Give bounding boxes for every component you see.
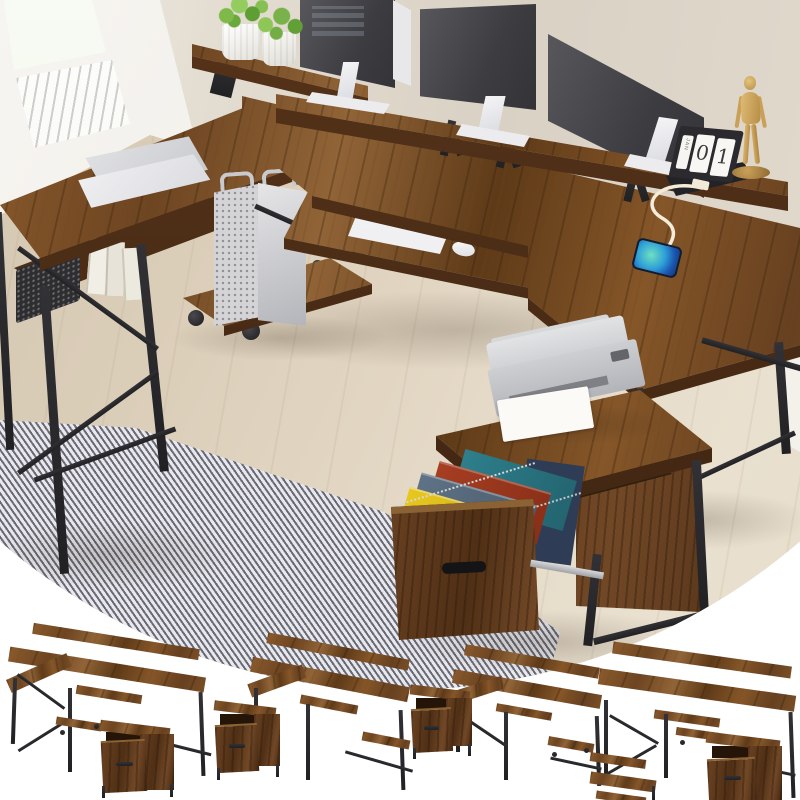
thumb-cart-wheel <box>584 748 589 753</box>
thumb-leg <box>199 692 206 776</box>
thumb-cabinet-leg <box>276 764 279 777</box>
laptop <box>77 134 211 211</box>
mannequin-leg <box>743 124 751 164</box>
mannequin-base <box>732 166 770 179</box>
cpu-front-lattice <box>214 184 258 326</box>
file-drawer <box>386 462 586 652</box>
drawer-handle <box>442 561 487 574</box>
thumb-partial-desk-shelf <box>596 791 647 800</box>
cart-wheel <box>188 310 204 326</box>
monitor-center-screen <box>420 4 536 110</box>
thumb-drawer-handle <box>116 762 133 766</box>
thumb-cart-wheel <box>552 752 557 757</box>
thumb-cabinet-drawer <box>101 739 148 793</box>
left-wing-shadow <box>0 520 240 590</box>
monitor-left-back <box>393 0 411 86</box>
wood-mannequin <box>726 76 778 184</box>
thumb-keyboard-tray <box>76 685 143 704</box>
thumb-leg <box>604 700 608 778</box>
thumb-drawer-handle <box>229 744 245 748</box>
cpu-side <box>258 180 306 326</box>
thumb-cabinet-drawer <box>411 707 453 753</box>
mannequin-torso <box>740 92 761 125</box>
thumb-partial-desk-top <box>589 771 656 792</box>
thumb-cart-wheel <box>680 740 685 745</box>
thumb-leg <box>789 712 796 798</box>
thumb-brace <box>609 714 659 745</box>
thumb-leg <box>68 688 72 772</box>
thumb-cabinet-leg <box>217 768 220 780</box>
thumb-drawer-handle <box>424 726 439 730</box>
thumb-leg <box>664 714 668 778</box>
thumbnail-variant-2[interactable] <box>214 640 406 798</box>
thumbnail-variant-1[interactable] <box>2 626 210 798</box>
thumb-leg <box>11 678 17 744</box>
mannequin-head <box>744 76 756 90</box>
thumb-leg <box>306 704 310 780</box>
thumb-cart-wheel <box>94 724 99 729</box>
product-image: JAN 0 1 <box>0 0 800 800</box>
thumb-cabinet-leg <box>170 784 173 797</box>
thumb-cabinet-leg <box>102 786 105 798</box>
thumb-drawer-handle <box>724 776 741 780</box>
calendar-month-label: JAN <box>682 138 691 151</box>
mannequin-leg <box>751 124 760 164</box>
monitor-left-screen-content <box>312 6 364 36</box>
thumbnail-variant-3[interactable] <box>400 652 604 792</box>
plant-leaves <box>252 6 306 40</box>
thumb-leg <box>652 786 655 800</box>
thumb-cabinet-leg <box>413 748 416 759</box>
thumb-cabinet-leg <box>468 744 471 756</box>
thumbnail-variant-4[interactable] <box>590 628 800 800</box>
thumb-cart-wheel <box>60 730 65 735</box>
thumb-cabinet-drawer <box>215 723 259 773</box>
